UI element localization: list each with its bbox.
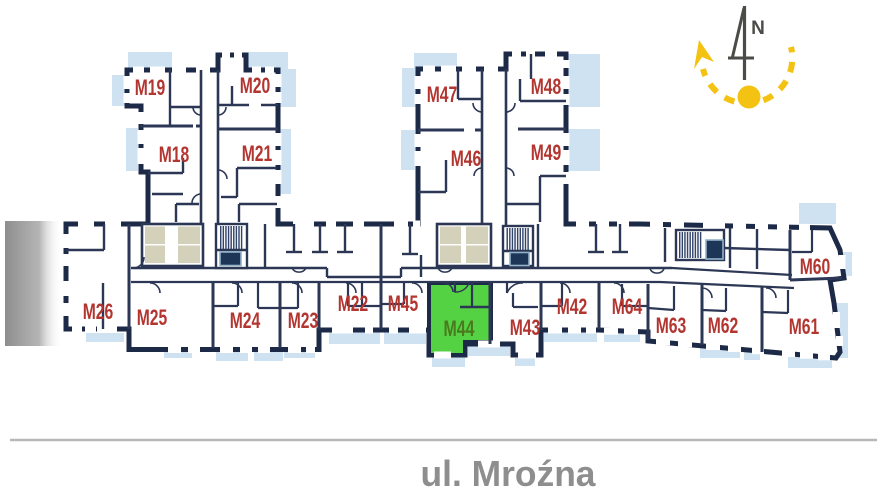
- svg-text:M26: M26: [83, 299, 114, 324]
- svg-text:M47: M47: [427, 82, 458, 107]
- svg-text:M63: M63: [656, 313, 687, 338]
- svg-text:M45: M45: [388, 291, 419, 316]
- svg-text:M21: M21: [242, 141, 273, 166]
- svg-text:M61: M61: [789, 314, 820, 339]
- svg-text:M62: M62: [708, 313, 739, 338]
- svg-text:N: N: [751, 18, 765, 39]
- svg-text:M43: M43: [510, 315, 541, 340]
- svg-text:M48: M48: [531, 74, 562, 99]
- svg-text:M20: M20: [240, 73, 271, 98]
- svg-text:M18: M18: [159, 142, 190, 167]
- svg-text:M46: M46: [451, 146, 482, 171]
- svg-text:M60: M60: [800, 254, 831, 279]
- svg-text:M22: M22: [338, 291, 369, 316]
- svg-text:M44: M44: [444, 316, 476, 341]
- svg-text:M64: M64: [612, 294, 643, 319]
- svg-text:M19: M19: [135, 75, 166, 100]
- svg-text:M24: M24: [230, 308, 261, 333]
- svg-text:M49: M49: [531, 140, 562, 165]
- svg-text:M42: M42: [557, 294, 588, 319]
- svg-text:M25: M25: [137, 305, 168, 330]
- svg-text:M23: M23: [288, 308, 319, 333]
- svg-text:ul. Mroźna: ul. Mroźna: [421, 453, 597, 494]
